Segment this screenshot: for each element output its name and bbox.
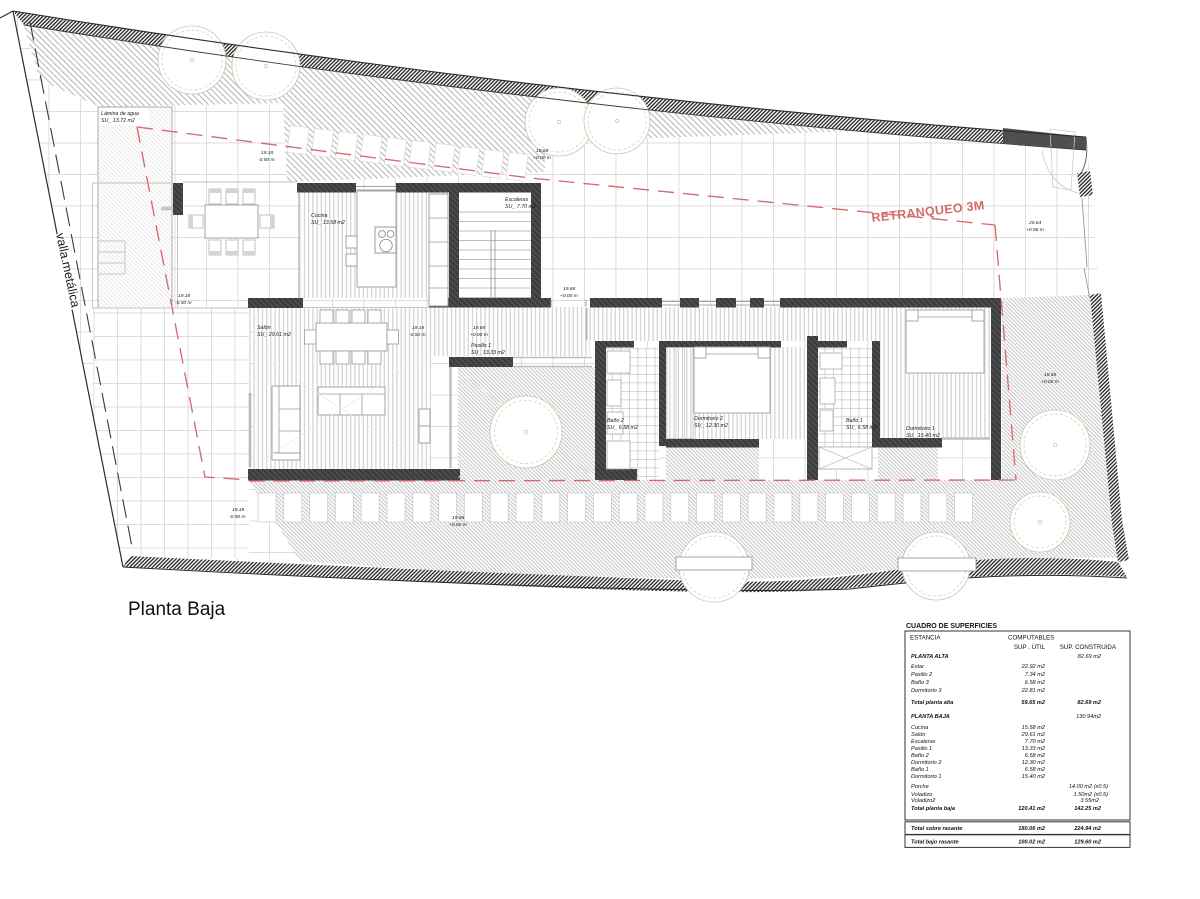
- svg-text:6.58 m2: 6.58 m2: [1025, 753, 1046, 759]
- svg-text:19.18: 19.18: [178, 293, 191, 299]
- svg-text:22.92 m2: 22.92 m2: [1021, 664, 1046, 670]
- svg-text:Pasillo 1: Pasillo 1: [471, 343, 491, 349]
- svg-text:PLANTA BAJA: PLANTA BAJA: [911, 714, 950, 720]
- svg-text:-0.50 m: -0.50 m: [229, 514, 246, 520]
- svg-text:180.06 m2: 180.06 m2: [1018, 826, 1046, 832]
- svg-text:Estar: Estar: [911, 664, 925, 670]
- svg-text:Dormitorio 2: Dormitorio 2: [694, 416, 723, 422]
- svg-text:CUADRO DE SUPERFICIES: CUADRO DE SUPERFICIES: [906, 623, 997, 630]
- svg-text:19.18: 19.18: [261, 150, 274, 156]
- svg-text:+0.00 m: +0.00 m: [533, 155, 551, 161]
- svg-text:29.61 m2: 29.61 m2: [1021, 732, 1046, 738]
- svg-text:SU_ 13.33 m2: SU_ 13.33 m2: [471, 350, 505, 356]
- svg-text:6.58 m2: 6.58 m2: [1025, 767, 1046, 773]
- svg-text:Salón: Salón: [911, 732, 925, 738]
- svg-text:Total bajo rasante: Total bajo rasante: [911, 840, 959, 846]
- svg-text:3.55m2: 3.55m2: [1080, 798, 1100, 804]
- svg-text:19.18: 19.18: [412, 325, 425, 331]
- svg-text:+0.00 m: +0.00 m: [560, 293, 578, 299]
- svg-text:SU_ 7.70 m2: SU_ 7.70 m2: [505, 204, 536, 210]
- svg-text:Escaleras: Escaleras: [911, 739, 936, 745]
- svg-text:142.25 m2: 142.25 m2: [1074, 806, 1102, 812]
- svg-text:7.34 m2: 7.34 m2: [1025, 672, 1046, 678]
- svg-text:Dormitorio 1: Dormitorio 1: [906, 426, 935, 432]
- svg-text:Porche: Porche: [911, 784, 929, 790]
- svg-text:+0.00 m: +0.00 m: [470, 332, 488, 338]
- svg-text:Baño 3: Baño 3: [911, 680, 930, 686]
- svg-text:19.68: 19.68: [563, 286, 576, 292]
- svg-text:Total sobre rasante: Total sobre rasante: [911, 826, 962, 832]
- svg-text:120.41 m2: 120.41 m2: [1018, 806, 1046, 812]
- svg-text:Dormitorio 2: Dormitorio 2: [911, 760, 942, 766]
- svg-text:129.60 m2: 129.60 m2: [1074, 840, 1102, 846]
- svg-text:Escaleras: Escaleras: [505, 197, 529, 203]
- svg-text:82.69 m2: 82.69 m2: [1077, 700, 1102, 706]
- svg-text:Baño 2: Baño 2: [911, 753, 930, 759]
- svg-text:SU_ 13.58 m2: SU_ 13.58 m2: [311, 220, 345, 226]
- svg-text:SU_ 12.30 m2: SU_ 12.30 m2: [694, 423, 728, 429]
- svg-text:15.58 m2: 15.58 m2: [1022, 725, 1046, 731]
- svg-text:18.68: 18.68: [1044, 372, 1057, 378]
- svg-text:+0.00 m: +0.00 m: [449, 522, 467, 528]
- svg-text:19.68: 19.68: [536, 148, 549, 154]
- svg-text:Baño 1: Baño 1: [846, 418, 863, 424]
- svg-text:-0.50 m: -0.50 m: [409, 332, 426, 338]
- svg-text:20.64: 20.64: [1028, 220, 1042, 226]
- svg-text:15.40 m2: 15.40 m2: [1022, 774, 1046, 780]
- svg-text:7.70 m2: 7.70 m2: [1025, 739, 1046, 745]
- svg-text:6.58 m2: 6.58 m2: [1025, 680, 1046, 686]
- svg-text:SU_ 15.40 m2: SU_ 15.40 m2: [906, 433, 940, 439]
- svg-text:224.94 m2: 224.94 m2: [1073, 826, 1102, 832]
- svg-text:Salón: Salón: [257, 325, 271, 331]
- svg-text:82.69 m2: 82.69 m2: [1078, 654, 1102, 660]
- svg-text:12.30 m2: 12.30 m2: [1022, 760, 1046, 766]
- svg-text:SU_ 6.58 m2: SU_ 6.58 m2: [607, 425, 638, 431]
- svg-text:COMPUTABLES: COMPUTABLES: [1008, 635, 1054, 642]
- svg-text:PLANTA ALTA: PLANTA ALTA: [911, 654, 949, 660]
- svg-text:Total planta baja: Total planta baja: [911, 806, 955, 812]
- svg-text:SUP . ÚTIL: SUP . ÚTIL: [1014, 644, 1046, 651]
- svg-text:19.18: 19.18: [232, 507, 245, 513]
- svg-text:Total planta alta: Total planta alta: [911, 700, 953, 706]
- svg-text:14.00 m2 (x0.5): 14.00 m2 (x0.5): [1069, 784, 1108, 790]
- svg-text:-0.50 m: -0.50 m: [258, 157, 275, 163]
- svg-text:SUP. CONSTRUIDA: SUP. CONSTRUIDA: [1060, 644, 1117, 651]
- svg-text:Baño 2: Baño 2: [607, 418, 624, 424]
- svg-text:Voladizo2: Voladizo2: [911, 798, 936, 804]
- svg-text:130.94m2: 130.94m2: [1076, 714, 1102, 720]
- svg-text:13.33 m2: 13.33 m2: [1022, 746, 1046, 752]
- svg-text:Lámina de agua: Lámina de agua: [101, 111, 139, 117]
- svg-text:SU_ 29.61 m2: SU_ 29.61 m2: [257, 332, 291, 338]
- svg-text:22.81 m2: 22.81 m2: [1021, 688, 1046, 694]
- svg-text:Dormitorio 3: Dormitorio 3: [911, 688, 942, 694]
- svg-text:100.02 m2: 100.02 m2: [1018, 840, 1046, 846]
- svg-text:SU_ 13.72 m2: SU_ 13.72 m2: [101, 118, 135, 124]
- svg-text:Pasillo 1: Pasillo 1: [911, 746, 932, 752]
- svg-text:Pasillo 2: Pasillo 2: [911, 672, 933, 678]
- svg-text:ESTANCIA: ESTANCIA: [910, 635, 941, 642]
- svg-text:Cocina: Cocina: [311, 213, 328, 219]
- svg-text:Cocina: Cocina: [911, 725, 928, 731]
- svg-text:+0.00 m: +0.00 m: [1041, 379, 1059, 385]
- svg-text:Dormitorio 1: Dormitorio 1: [911, 774, 941, 780]
- svg-text:19.68: 19.68: [452, 515, 465, 521]
- svg-text:Baño 1: Baño 1: [911, 767, 929, 773]
- svg-text:59.65 m2: 59.65 m2: [1021, 700, 1046, 706]
- svg-text:-0.50 m: -0.50 m: [175, 300, 192, 306]
- svg-text:Planta Baja: Planta Baja: [128, 599, 226, 620]
- svg-text:+0.96 m: +0.96 m: [1026, 227, 1044, 233]
- svg-text:SU_ 6.58 m2: SU_ 6.58 m2: [846, 425, 877, 431]
- svg-text:19.68: 19.68: [473, 325, 486, 331]
